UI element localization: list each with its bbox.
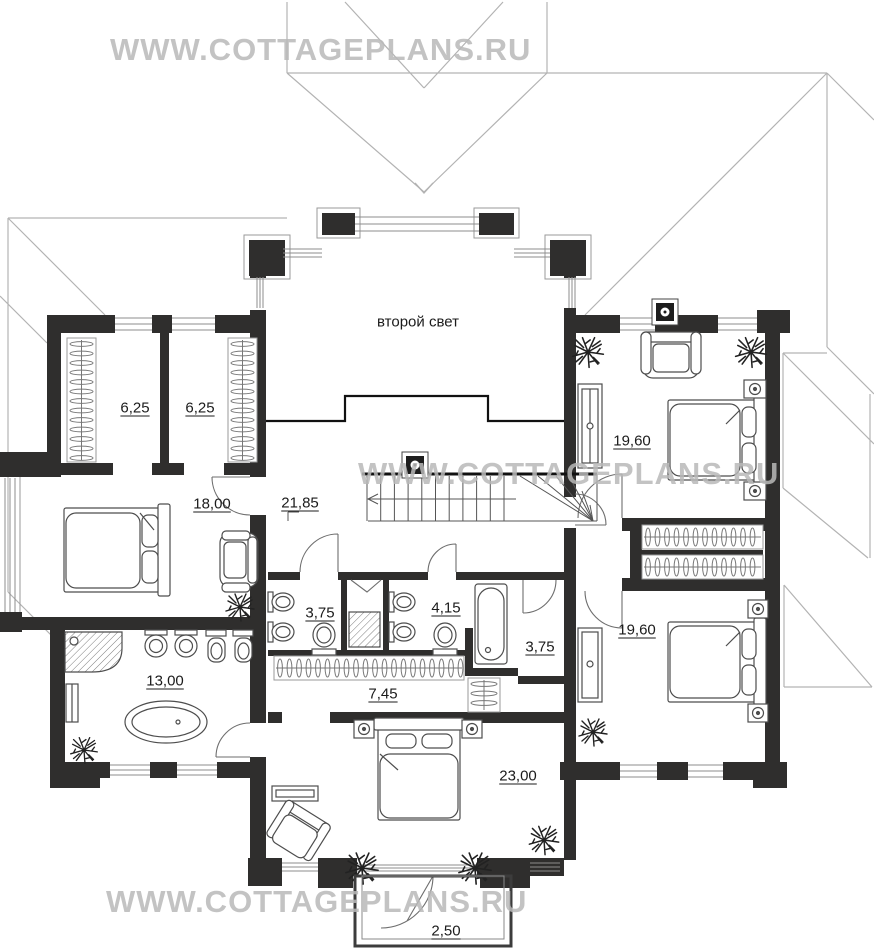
furniture bbox=[64, 332, 768, 864]
bathroom-left-fixtures bbox=[268, 592, 336, 655]
tv-master bbox=[272, 786, 318, 801]
room-label-master-bathroom: 13,00 bbox=[146, 673, 184, 690]
room-label-bedroom-west: 18,00 bbox=[193, 496, 231, 513]
bed-southeast bbox=[668, 618, 766, 706]
closet-rails bbox=[67, 338, 763, 712]
room-label-bedroom-southeast: 19,60 bbox=[618, 622, 656, 639]
room-label-balcony: 2,50 bbox=[431, 923, 460, 940]
armchair-northeast bbox=[641, 332, 701, 378]
armchair-master bbox=[264, 799, 331, 864]
second-light-label: второй свет bbox=[377, 314, 459, 331]
floor-plan-page: WWW.COTTAGEPLANS.RU WWW.COTTAGEPLANS.RU … bbox=[0, 0, 874, 952]
void-edge bbox=[266, 396, 564, 421]
room-label-closet-west-2: 6,25 bbox=[185, 400, 214, 417]
room-label-wardrobe-corridor: 7,45 bbox=[368, 686, 397, 703]
armchair-west bbox=[220, 531, 258, 592]
room-label-hall-stairs: 21,85 bbox=[281, 495, 319, 512]
stairs bbox=[362, 474, 597, 521]
wardrobe-northeast bbox=[578, 384, 602, 468]
bed-master bbox=[374, 718, 464, 820]
wardrobe-southeast bbox=[578, 628, 602, 702]
chimney-northeast bbox=[652, 299, 678, 325]
shower-stall bbox=[349, 612, 380, 647]
chimney-hall bbox=[402, 452, 428, 478]
floor-plan-drawing bbox=[0, 0, 874, 952]
room-label-master-bedroom: 23,00 bbox=[499, 768, 537, 785]
room-label-closet-west-1: 6,25 bbox=[120, 400, 149, 417]
room-label-wc-right: 3,75 bbox=[525, 639, 554, 656]
room-label-bathroom-left: 3,75 bbox=[305, 605, 334, 622]
room-label-bedroom-northeast: 19,60 bbox=[613, 433, 651, 450]
bed-northeast bbox=[668, 396, 766, 484]
dimension-corner-mark bbox=[288, 512, 299, 521]
bed-west bbox=[64, 504, 170, 596]
room-label-bathroom-center: 4,15 bbox=[431, 600, 460, 617]
